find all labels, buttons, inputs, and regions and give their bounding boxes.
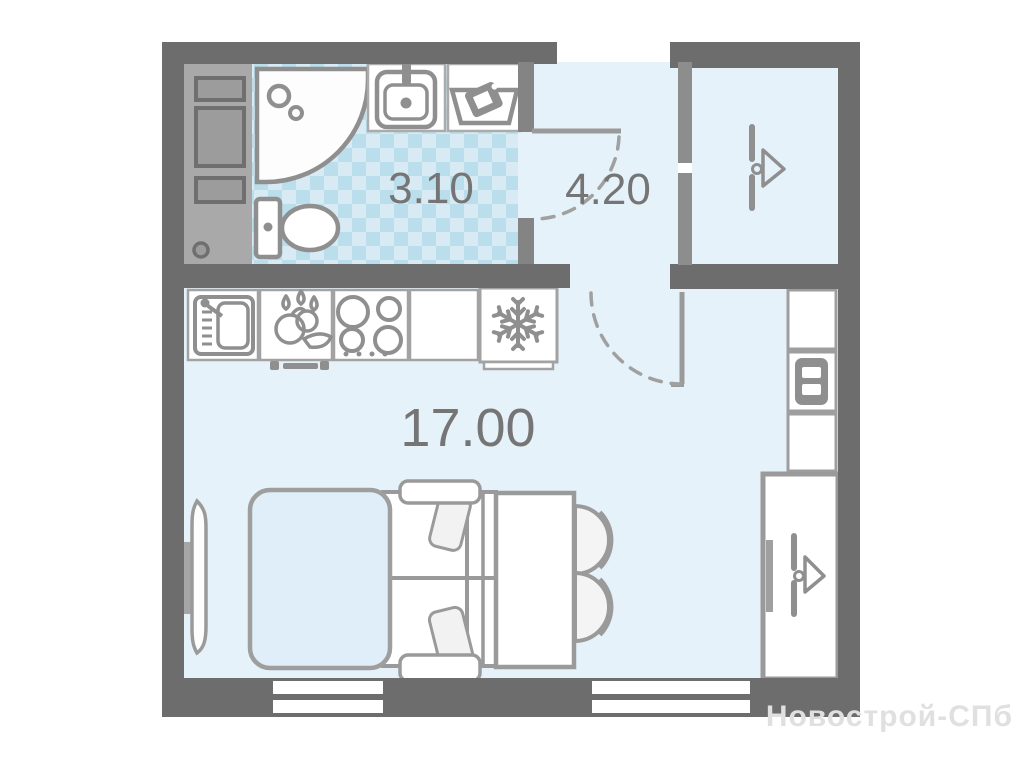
shelf-unit xyxy=(788,290,836,471)
cabinet-icon xyxy=(795,358,828,405)
laundry-basket-icon xyxy=(448,64,520,131)
utility-cabinet xyxy=(184,64,252,264)
toilet xyxy=(256,199,338,257)
shower xyxy=(257,69,368,182)
bedside-bench xyxy=(400,655,480,681)
chair xyxy=(575,506,611,574)
kitchen-sink-icon xyxy=(195,297,253,354)
dining-table xyxy=(496,493,574,667)
washbasin xyxy=(368,58,445,131)
floor-plan: 3.10 4.20 17.00 Новострой-СПб xyxy=(0,0,1023,768)
wardrobe xyxy=(763,474,838,679)
bedside-bench xyxy=(400,481,480,503)
double-bed xyxy=(250,481,496,681)
chair xyxy=(575,573,611,641)
living-room-area-label: 17.00 xyxy=(400,397,535,459)
hallway-area-label: 4.20 xyxy=(565,165,651,215)
plan-drawing xyxy=(0,0,1023,768)
bathroom-area-label: 3.10 xyxy=(388,164,474,214)
watermark: Новострой-СПб xyxy=(766,700,1013,734)
